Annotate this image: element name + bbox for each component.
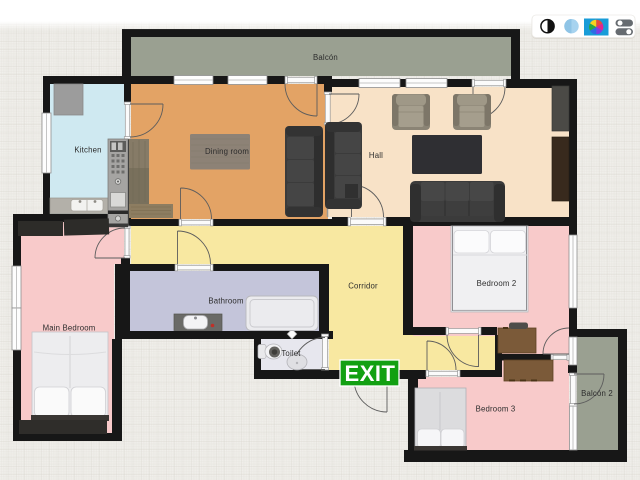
svg-text:Dining room: Dining room [205, 147, 249, 156]
svg-text:EXIT: EXIT [345, 361, 396, 386]
svg-text:Main Bedroom: Main Bedroom [43, 324, 96, 333]
svg-text:Balcón 2: Balcón 2 [581, 389, 613, 398]
svg-text:Bedroom 3: Bedroom 3 [476, 405, 516, 414]
svg-text:Toilet: Toilet [281, 349, 301, 358]
svg-text:Bathroom: Bathroom [208, 297, 243, 306]
svg-text:Balcón: Balcón [313, 53, 338, 62]
svg-text:Kitchen: Kitchen [74, 146, 101, 155]
svg-text:Hall: Hall [369, 151, 383, 160]
svg-text:Bedroom 2: Bedroom 2 [477, 279, 517, 288]
svg-text:Corridor: Corridor [348, 282, 378, 291]
